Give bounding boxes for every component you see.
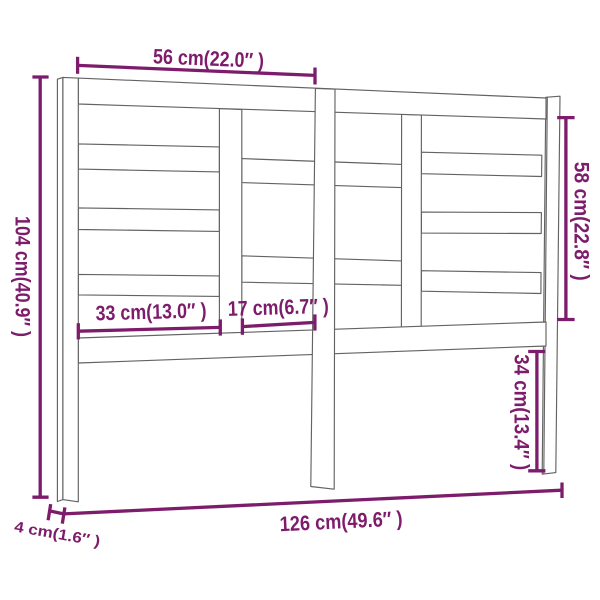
svg-text:17 cm(6.7″ ): 17 cm(6.7″ ) <box>227 295 329 321</box>
svg-text:58 cm(22.8″ ): 58 cm(22.8″ ) <box>570 162 593 281</box>
svg-text:56 cm(22.0″ ): 56 cm(22.0″ ) <box>153 45 265 72</box>
svg-text:34 cm(13.4″ ): 34 cm(13.4″ ) <box>510 354 533 470</box>
svg-text:104 cm(40.9″ ): 104 cm(40.9″ ) <box>11 216 34 337</box>
svg-text:33 cm(13.0″ ): 33 cm(13.0″ ) <box>95 299 207 325</box>
